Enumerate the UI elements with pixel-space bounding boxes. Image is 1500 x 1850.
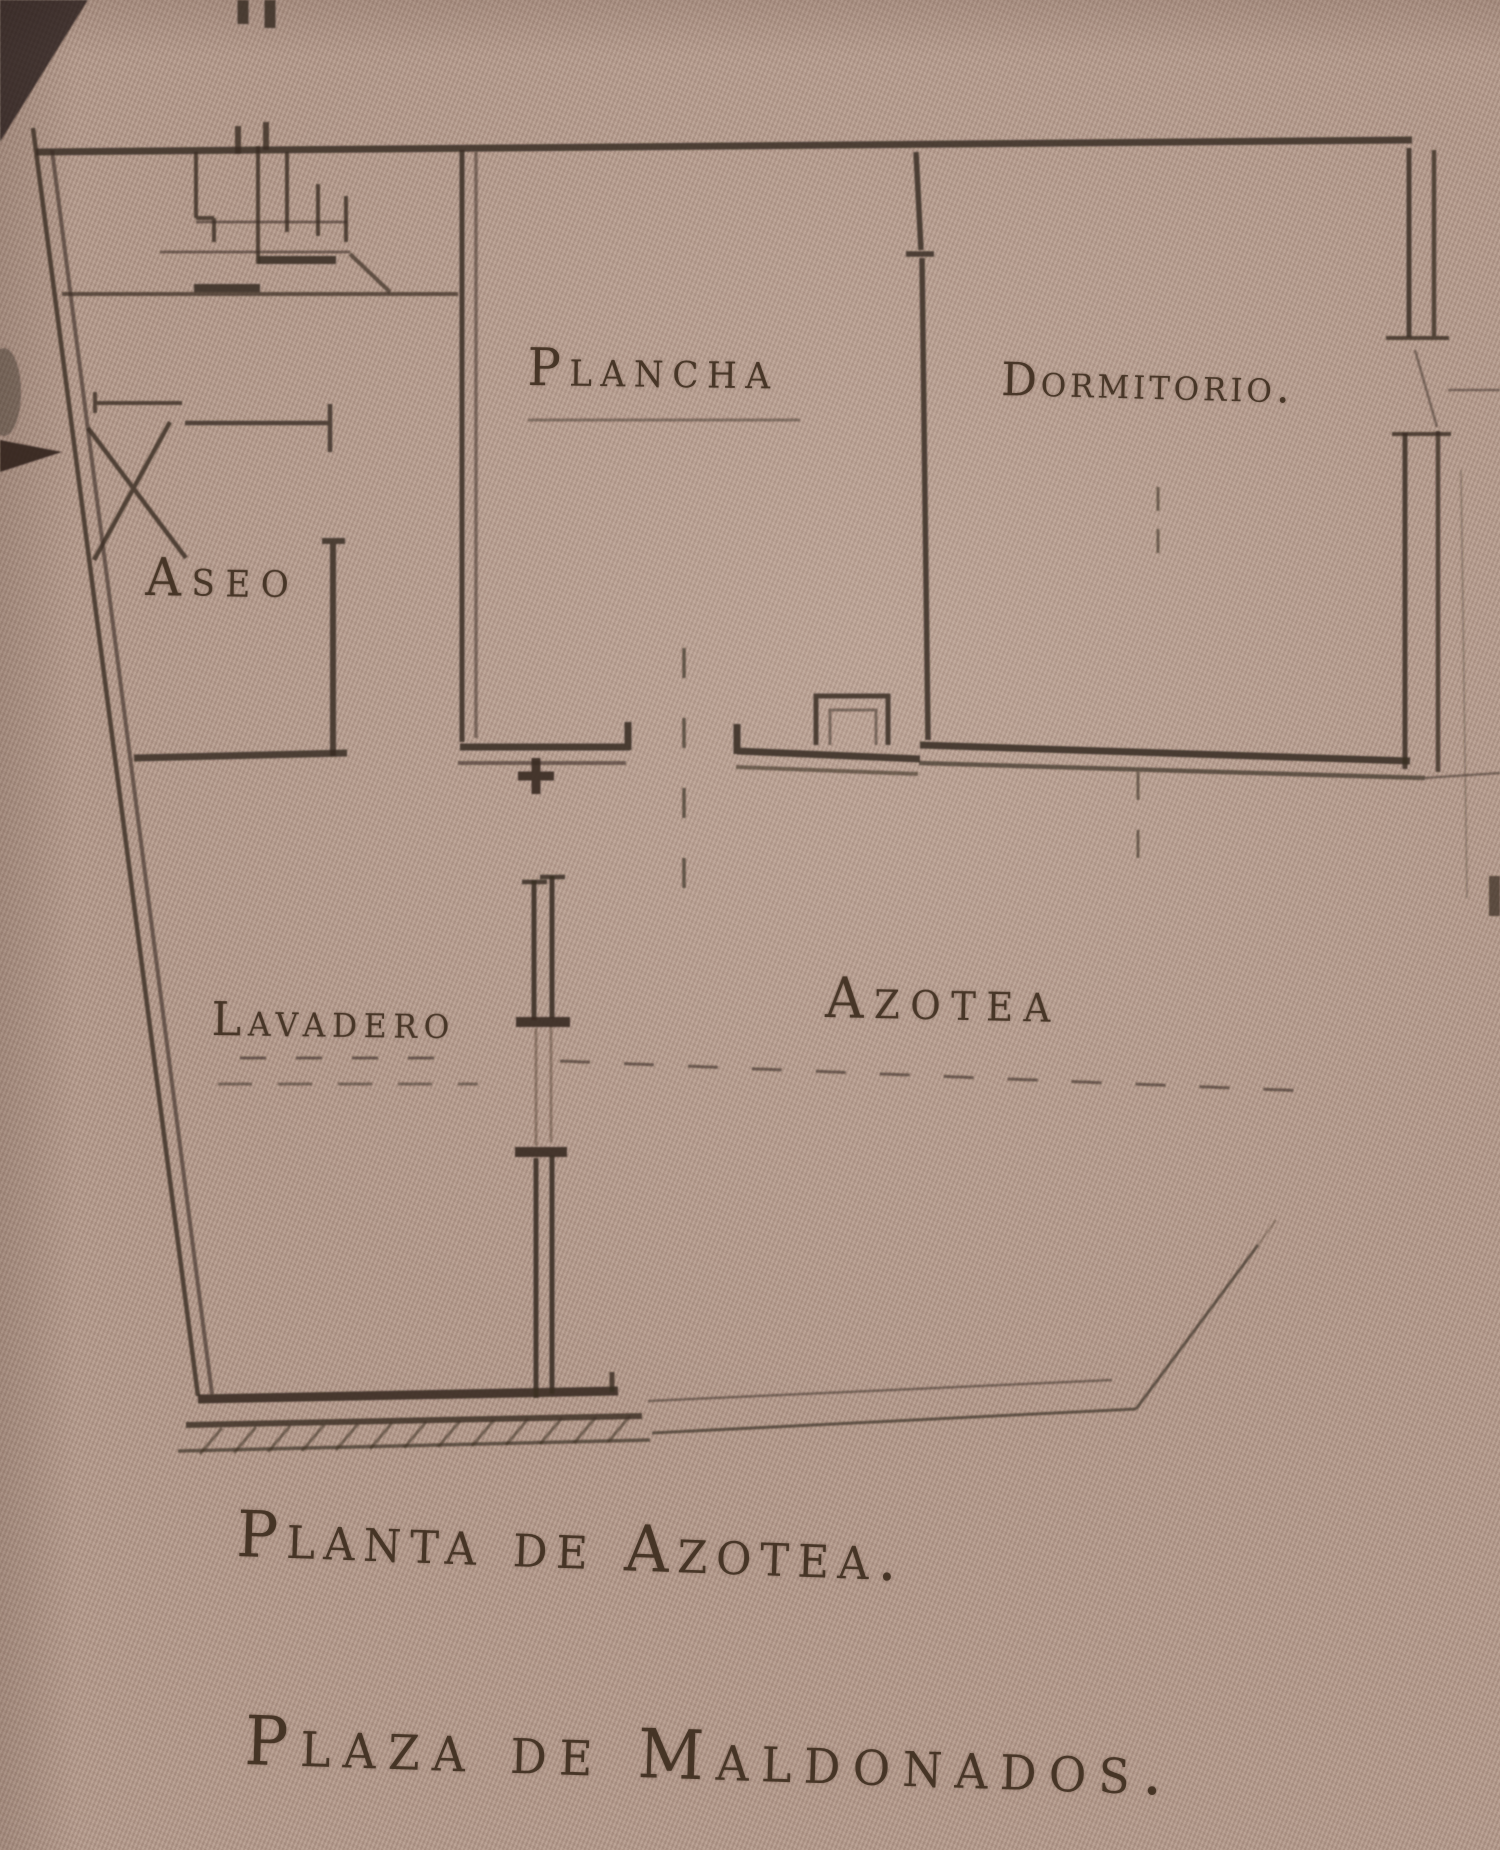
room-label-aseo: Aseo — [145, 548, 300, 611]
right-edge-mark — [1489, 876, 1500, 916]
flue-faint-middle — [536, 1026, 551, 1146]
dormitorio-bottom-wall-extension — [1425, 773, 1500, 778]
chimney-box-inner — [830, 710, 876, 745]
flue-upper-lines — [534, 876, 552, 1020]
dormitorio-bottom-wall-inner — [919, 763, 1425, 778]
stair-diagonal-tick — [350, 254, 390, 292]
bottom-parapet — [178, 1372, 650, 1454]
plancha-walls — [458, 150, 920, 794]
terrace-thin-line-upper — [648, 1380, 1112, 1401]
flue-lower-lines — [536, 1156, 552, 1398]
room-label-azotea: Azotea — [825, 966, 1062, 1036]
azotea-dash-right — [560, 1061, 1308, 1091]
right-wall-outer — [1434, 150, 1438, 772]
sheet-fold-line — [1461, 470, 1467, 898]
ink-drawing — [0, 122, 1500, 1454]
plancha-bottom-wall-left — [460, 722, 630, 750]
left-boundary-outer-line — [33, 128, 198, 1396]
parapet-outer-line — [198, 1391, 618, 1399]
window-diagonal — [1415, 350, 1437, 427]
window-ticks — [1386, 338, 1451, 434]
top-edge-marks — [243, 0, 270, 28]
terrace-diagonal-faint — [1258, 1220, 1276, 1245]
plancha-bottom-wall-right-inner — [736, 767, 918, 774]
stair-treads — [160, 222, 350, 252]
aseo-right-wall — [322, 540, 345, 756]
aseo-door-line-left — [95, 392, 182, 413]
left-boundary — [33, 128, 212, 1396]
parapet-inner-line — [186, 1416, 642, 1425]
aseo-bottom-wall — [134, 753, 347, 758]
terrace-thin-line-lower — [652, 1409, 1136, 1433]
projection-dashes — [684, 487, 1158, 905]
dormitorio-walls — [919, 148, 1500, 898]
floor-plan-photo: Plancha Dormitorio. Aseo Lavadero Azotea… — [0, 0, 1500, 1850]
aseo-door-line-right — [185, 404, 330, 452]
azotea-dash-lines — [218, 1058, 1308, 1091]
terrace-diagonal — [1136, 1245, 1258, 1409]
dormitorio-bottom-wall — [920, 745, 1410, 761]
room-label-lavadero: Lavadero — [211, 992, 456, 1050]
dark-corner-top-left — [0, 0, 88, 142]
stair-risers-dark — [194, 260, 336, 288]
room-label-dormitorio: Dormitorio. — [1001, 352, 1295, 414]
terrace-edge — [648, 1220, 1276, 1433]
photo-artifacts — [0, 0, 1500, 916]
flue-top-serifs — [522, 877, 565, 882]
right-wall-inner — [1405, 148, 1409, 769]
divider-wall — [906, 152, 934, 740]
room-label-plancha: Plancha — [527, 338, 779, 402]
left-boundary-inner-line — [52, 150, 212, 1394]
entry-arrow — [0, 440, 62, 472]
flue-wall — [515, 876, 570, 1398]
left-edge-smudge — [0, 348, 21, 436]
ground-line — [178, 1440, 650, 1451]
top-wall — [36, 140, 1412, 152]
stair-verticals — [196, 146, 346, 264]
